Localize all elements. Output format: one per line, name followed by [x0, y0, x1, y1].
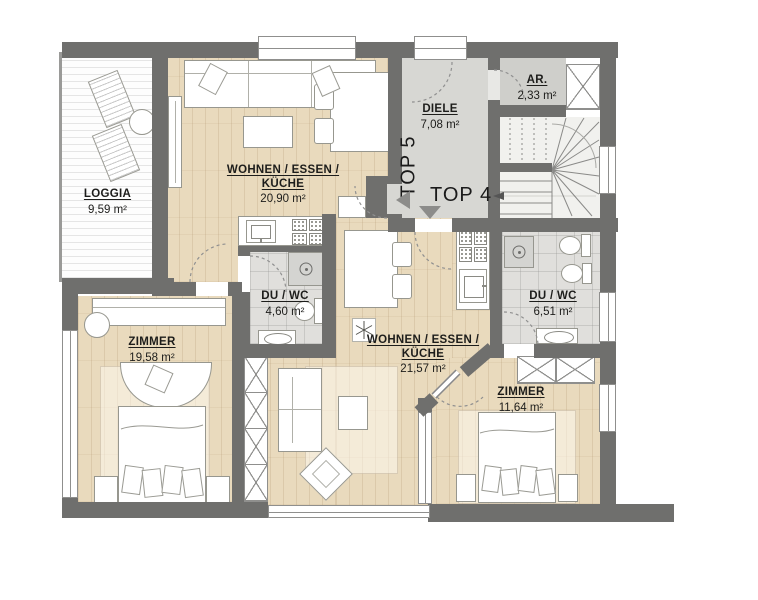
wall	[250, 246, 324, 252]
window	[258, 36, 356, 60]
bed-pillow	[142, 468, 164, 498]
kitchen-sink	[459, 269, 487, 303]
shower	[288, 252, 324, 286]
cooktop	[292, 219, 324, 245]
window	[62, 330, 78, 498]
ar-door-opening	[488, 70, 500, 100]
wall	[62, 502, 268, 518]
desk	[92, 298, 226, 326]
washbasin	[536, 328, 578, 344]
wall	[366, 176, 388, 218]
room-label-top5-bath: DU / WC 4,60 m²	[248, 290, 322, 318]
kitchen-sink	[246, 220, 276, 243]
stool	[84, 312, 110, 338]
nightstand	[456, 474, 476, 502]
window	[599, 292, 616, 342]
room-label-diele: DIELE 7,08 m²	[405, 103, 475, 131]
dining-table	[344, 230, 398, 308]
dining-chair	[314, 118, 334, 144]
bed-pillow	[121, 465, 144, 495]
coffee-table	[338, 396, 368, 430]
wall	[388, 218, 415, 232]
bed-pillow	[517, 465, 537, 493]
bed-pillow	[500, 468, 520, 496]
wardrobe	[517, 356, 595, 384]
wall	[452, 218, 618, 232]
bidet-tank	[582, 263, 592, 284]
top4-direction-arrow	[419, 206, 441, 219]
wall	[534, 344, 612, 358]
cooktop	[459, 230, 487, 262]
wall	[238, 344, 336, 358]
nightstand	[94, 476, 118, 503]
dining-chair	[392, 242, 412, 267]
shaft	[566, 64, 600, 110]
top5-direction-arrow	[396, 191, 410, 209]
wall	[490, 225, 502, 345]
wc-toilet	[559, 236, 581, 255]
coffee-table	[243, 116, 293, 148]
room-label-top4-room: ZIMMER 11,64 m²	[481, 386, 561, 414]
bed-pillow	[535, 468, 555, 496]
shower-head-icon	[513, 246, 526, 259]
shower	[504, 236, 534, 268]
staircase-floor	[500, 117, 600, 218]
sofa	[278, 368, 322, 452]
wall	[600, 42, 616, 522]
dining-chair	[392, 274, 412, 299]
tv-sideboard	[168, 96, 182, 188]
washbasin	[258, 330, 296, 345]
wc-cistern	[581, 234, 591, 257]
unit-label-top4: TOP 4	[430, 184, 492, 207]
nightstand	[558, 474, 578, 502]
wall	[488, 105, 566, 117]
floor-plan: LOGGIA 9,59 m² WOHNEN / ESSEN / KÜCHE 20…	[0, 0, 758, 600]
window	[599, 384, 616, 432]
nightstand	[206, 476, 230, 503]
room-label-loggia: LOGGIA 9,59 m²	[60, 188, 155, 216]
dining-table	[330, 72, 390, 152]
room-label-top4-living: WOHNEN / ESSEN / KÜCHE 21,57 m²	[343, 334, 503, 375]
bidet	[561, 264, 583, 283]
window	[599, 146, 616, 194]
wall	[152, 282, 196, 296]
loggia-edge	[59, 52, 62, 282]
wall	[428, 504, 674, 522]
wall	[152, 42, 168, 292]
bed-pillow	[181, 468, 204, 498]
room-label-top4-bath: DU / WC 6,51 m²	[516, 290, 590, 318]
shower-head-icon	[300, 263, 313, 276]
wall	[232, 296, 244, 502]
interior-glazing	[418, 412, 432, 504]
room-label-top5-room: ZIMMER 19,58 m²	[112, 336, 192, 364]
wall	[488, 58, 500, 70]
room-label-top5-living: WOHNEN / ESSEN / KÜCHE 20,90 m²	[203, 164, 363, 205]
top4-entry-opening	[415, 219, 452, 232]
window	[268, 505, 430, 518]
room-label-ar: AR. 2,33 m²	[505, 74, 569, 102]
wardrobe	[244, 356, 268, 502]
wall	[322, 214, 336, 358]
window	[414, 36, 467, 60]
top5-living-floor-lower	[166, 218, 238, 282]
wall	[238, 246, 250, 256]
